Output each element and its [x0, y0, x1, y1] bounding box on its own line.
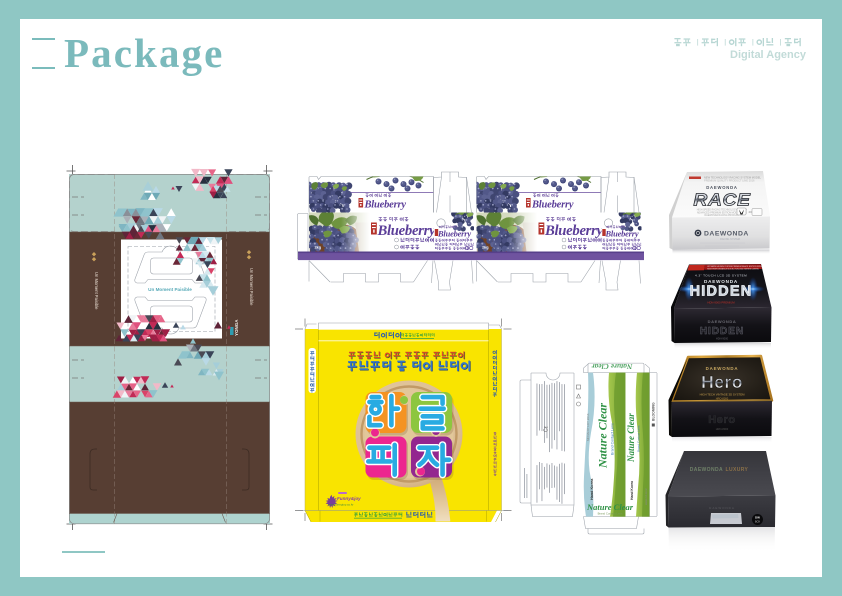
svg-text:Funny&joy: Funny&joy: [337, 496, 361, 501]
svg-text:4.3” TOUCH LCD 3D SYSTEM: 4.3” TOUCH LCD 3D SYSTEM: [695, 274, 747, 278]
svg-text:BOX: BOX: [755, 521, 760, 524]
svg-text:DW: DW: [755, 516, 760, 520]
svg-text:20: 20: [749, 210, 753, 214]
svg-text:Nature Clear: Nature Clear: [626, 413, 636, 463]
svg-text:Hand Korea: Hand Korea: [630, 481, 634, 500]
svg-text:RACING SYSTEM: RACING SYSTEM: [720, 238, 740, 241]
svg-text:Brand Contact Lens: Brand Contact Lens: [598, 512, 623, 516]
svg-text:HDN-9000 PREMIUM: HDN-9000 PREMIUM: [707, 301, 735, 305]
svg-text:YONGA: YONGA: [234, 319, 239, 336]
svg-text:Un Moment Paisible: Un Moment Paisible: [148, 287, 192, 292]
svg-text:DAEWONDA RACING PRODUCT: DAEWONDA RACING PRODUCT: [705, 214, 741, 217]
svg-text:Nature Clear: Nature Clear: [592, 362, 634, 371]
svg-text:HDN-9000: HDN-9000: [716, 337, 729, 341]
svg-text:HIDDEN: HIDDEN: [700, 326, 744, 337]
svg-text:Brand Contact Lens: Brand Contact Lens: [637, 425, 641, 452]
svg-text:Hero: Hero: [701, 372, 743, 392]
svg-text:www.funnyjoy.co.kr: www.funnyjoy.co.kr: [328, 503, 353, 507]
svg-text:MFD/EXP LOT 2016: MFD/EXP LOT 2016: [586, 413, 590, 441]
svg-text:HRO-8000: HRO-8000: [716, 396, 729, 400]
svg-text:www.ncl.co.kr: www.ncl.co.kr: [644, 488, 648, 505]
svg-text:LUXURY: LUXURY: [726, 467, 749, 473]
svg-text:DAEWONDA: DAEWONDA: [708, 319, 737, 324]
svg-text:HIGH PERFORMANCE MODEL HDN-900: HIGH PERFORMANCE MODEL HDN-9000 SERIES L…: [707, 267, 760, 270]
svg-text:Un Moment Paisible: Un Moment Paisible: [249, 268, 254, 306]
svg-text:Brand Contact Lens: Brand Contact Lens: [611, 423, 615, 455]
svg-text:PREMIUM QUALITY PRODUCT LINE 2: PREMIUM QUALITY PRODUCT LINE 2016: [704, 179, 755, 183]
svg-text:HIDDEN: HIDDEN: [690, 284, 753, 300]
svg-text:Hero: Hero: [708, 414, 735, 426]
svg-text:Un Moment Paisible: Un Moment Paisible: [94, 272, 99, 310]
svg-text:HRO-8000: HRO-8000: [716, 427, 729, 431]
svg-text:Nature Clear: Nature Clear: [596, 403, 610, 469]
svg-text:DAEWONDA: DAEWONDA: [706, 366, 739, 371]
svg-text:DAEWONDA: DAEWONDA: [709, 506, 735, 510]
svg-text:Nature Clear: Nature Clear: [586, 502, 634, 512]
svg-text:Hand Korea: Hand Korea: [590, 478, 594, 500]
svg-text:BLOOMING: BLOOMING: [652, 402, 656, 421]
svg-text:Cε: Cε: [544, 425, 550, 432]
svg-text:DAEWONDA: DAEWONDA: [704, 231, 749, 238]
svg-text:HIGH TECH VINTAGE 3D SYSTEM: HIGH TECH VINTAGE 3D SYSTEM: [700, 393, 745, 397]
svg-text:DAEWONDA: DAEWONDA: [690, 467, 723, 473]
svg-text:RACE: RACE: [693, 189, 750, 209]
